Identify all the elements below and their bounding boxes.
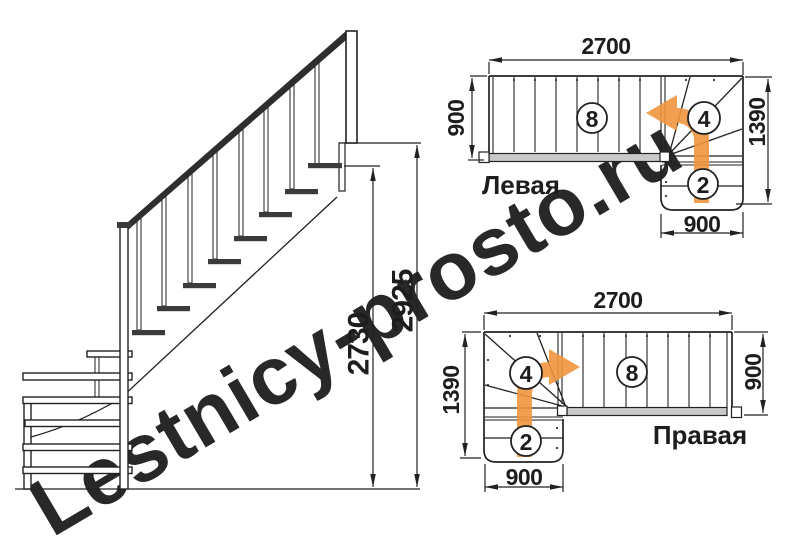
bottom-newel-post (120, 227, 128, 489)
plan-label-left: Левая (482, 170, 560, 200)
bottom-newel-cap (117, 222, 131, 228)
bottom-winder-steps (23, 351, 132, 489)
dim-turn-depth-label-right: 1390 (438, 365, 464, 414)
winder-steps-count-left: 4 (698, 106, 711, 132)
flight-steps-count-right: 8 (626, 360, 639, 386)
end-post-right-plan (732, 407, 742, 418)
corner-post-left-plan (660, 152, 670, 162)
plan-view-right: 4 8 2 2700 1390 900 900 Правая (438, 287, 768, 492)
dimensions-right-plan: 2700 1390 900 900 (438, 287, 768, 492)
lower-steps-count-left: 2 (697, 172, 710, 198)
staircase-drawing-page: Lestnicy-prosto.ru (0, 0, 800, 549)
dim-exit-width-label-right: 900 (506, 464, 543, 490)
fascia-strip-right-plan (567, 408, 727, 416)
dim-turn-depth-label-left: 1390 (744, 97, 770, 146)
dim-width-label-right: 900 (740, 354, 766, 391)
dim-width-label-left: 900 (443, 100, 469, 137)
staircase-technical-drawing: Lestnicy-prosto.ru (0, 0, 800, 549)
lower-steps-count-right: 2 (520, 429, 533, 455)
dim-length-label-right: 2700 (593, 287, 642, 313)
dim-length-label-left: 2700 (581, 33, 630, 59)
fascia-strip-left-plan (489, 154, 661, 162)
start-post-left-plan (479, 152, 489, 163)
handrail (128, 31, 346, 230)
winder-steps-count-right: 4 (520, 361, 533, 387)
plan-label-right: Правая (653, 420, 747, 450)
top-newel-post (346, 31, 357, 143)
dim-total-height-label: 2925 (387, 269, 420, 332)
corner-post-right-plan (558, 406, 568, 416)
dim-flight-height-label: 2730 (343, 312, 376, 375)
flight-steps-count-left: 8 (586, 106, 599, 132)
dim-exit-width-label-left: 900 (684, 211, 721, 237)
